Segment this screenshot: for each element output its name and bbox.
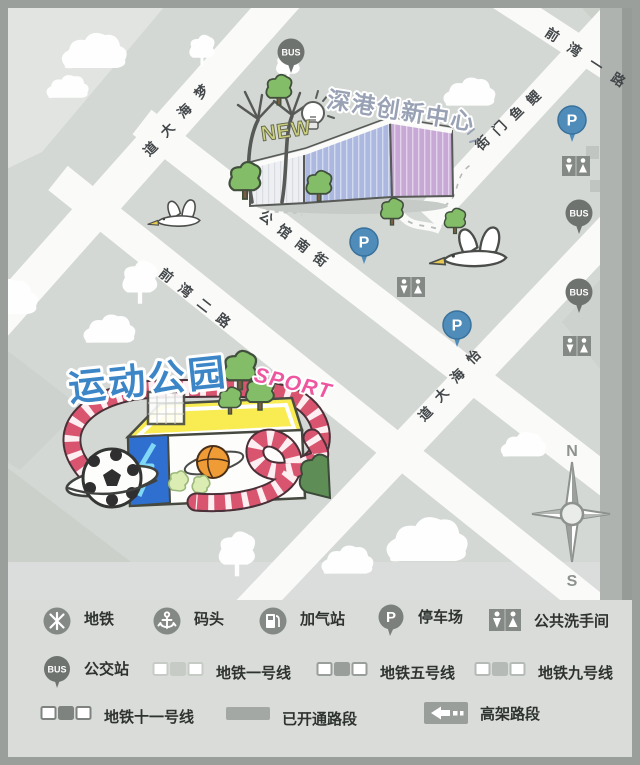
metro-icon <box>42 606 72 636</box>
metro-line-5-icon <box>316 660 368 678</box>
legend-item-line11: 地铁十一号线 <box>40 704 194 732</box>
gas-station-icon <box>258 606 288 636</box>
legend-item-gas: 加气站 <box>258 606 345 636</box>
opened-road-icon <box>226 706 270 721</box>
parking-icon: P <box>376 604 406 634</box>
legend-label: 已开通路段 <box>282 706 357 734</box>
legend-label: 公共洗手间 <box>534 608 609 636</box>
elevated-road-icon <box>424 701 468 725</box>
map-canvas: BUS P <box>0 0 640 600</box>
legend-label: 地铁九号线 <box>538 660 613 688</box>
legend-label: 加气站 <box>300 606 345 634</box>
restroom-icon <box>397 277 425 297</box>
legend-item-parking: P 停车场 <box>376 604 463 634</box>
restroom-icon <box>563 336 591 356</box>
legend-item-opened: 已开通路段 <box>226 706 357 734</box>
legend-item-line5: 地铁五号线 <box>316 660 455 688</box>
parking-letter: P <box>386 609 396 626</box>
legend-item-wharf: 码头 <box>152 606 224 636</box>
legend-label: 地铁五号线 <box>380 660 455 688</box>
legend-label: 地铁十一号线 <box>104 704 194 732</box>
legend-item-restroom: 公共洗手间 <box>488 608 609 636</box>
legend-item-line1: 地铁一号线 <box>152 660 291 688</box>
restroom-icon <box>562 156 590 176</box>
compass-south-label: S <box>567 573 578 590</box>
map-legend: 地铁 码头 加气站 P 停车场 <box>0 598 640 765</box>
legend-label: 地铁 <box>84 606 114 634</box>
legend-item-metro: 地铁 <box>42 606 114 636</box>
legend-label: 高架路段 <box>480 701 540 729</box>
metro-line-11-icon <box>40 704 92 722</box>
legend-label: 地铁一号线 <box>216 660 291 688</box>
legend-item-bus: BUS 公交站 <box>42 656 129 686</box>
dark-tree <box>300 454 330 498</box>
map-right-border <box>622 0 640 600</box>
metro-line-1-icon <box>152 660 204 678</box>
legend-label: 停车场 <box>418 604 463 632</box>
legend-item-line9: 地铁九号线 <box>474 660 613 688</box>
legend-label: 公交站 <box>84 656 129 684</box>
bus-letters: BUS <box>47 665 66 675</box>
restroom-icon <box>488 608 522 632</box>
wharf-icon <box>152 606 182 636</box>
legend-label: 码头 <box>194 606 224 634</box>
legend-item-elevated: 高架路段 <box>424 701 540 729</box>
metro-line-9-icon <box>474 660 526 678</box>
bus-stop-icon: BUS <box>42 656 72 686</box>
promo-map-image: { "map": { "innovation_center": { "title… <box>0 0 640 765</box>
compass-north-label: N <box>566 443 578 460</box>
